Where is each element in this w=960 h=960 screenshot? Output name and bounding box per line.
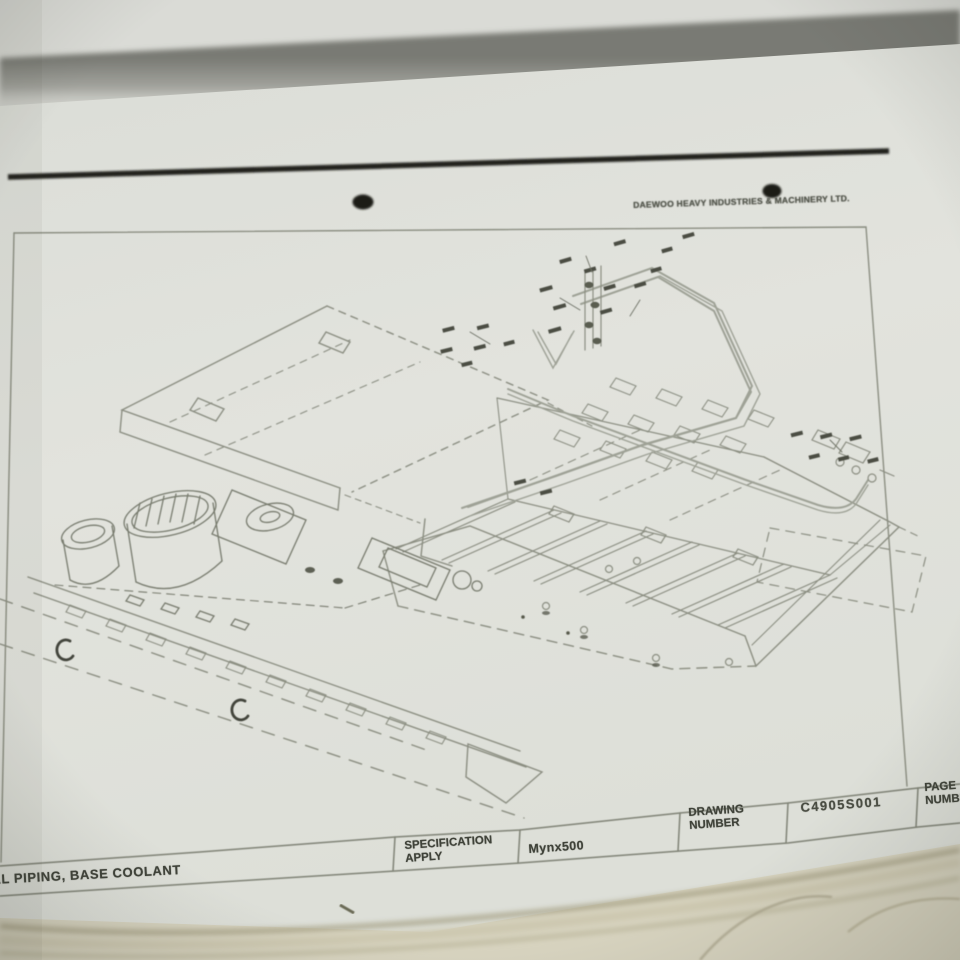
page-photo-art <box>0 0 960 960</box>
specification-label-line2: APPLY <box>405 851 443 865</box>
page-number-label-line2: NUMBER <box>925 792 960 807</box>
drawing-number-label: DRAWINGNUMBER <box>688 803 745 833</box>
manual-page-photo: DAEWOO HEAVY INDUSTRIES & MACHINERY LTD.… <box>0 0 960 960</box>
drawing-number-label-line2: NUMBER <box>689 817 740 832</box>
photo-vignette <box>0 0 960 960</box>
page-number-label: PAGENUMBER <box>924 779 960 809</box>
page-number-label-line1: PAGE <box>924 780 956 794</box>
